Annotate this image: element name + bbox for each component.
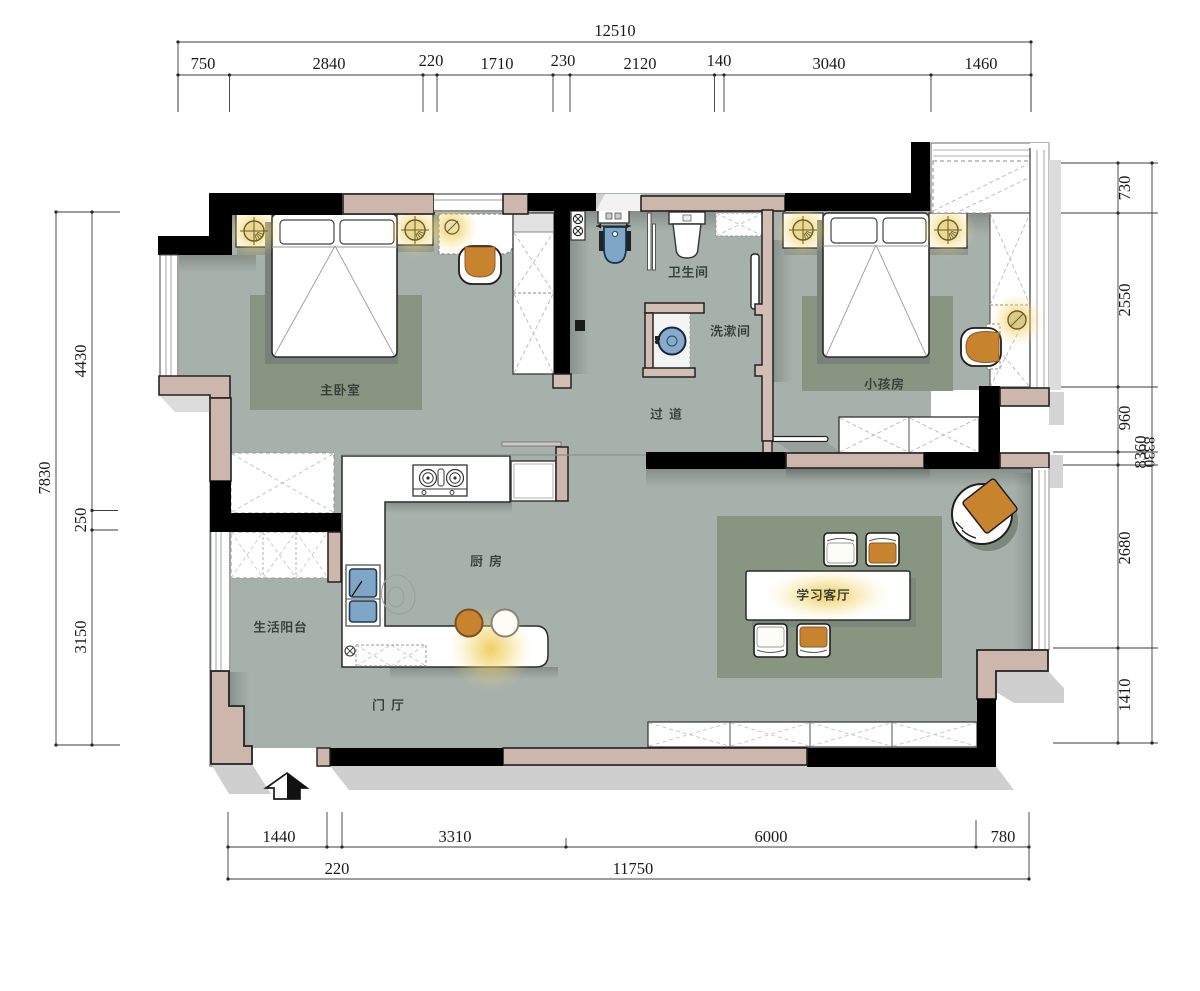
svg-text:750: 750 — [191, 54, 216, 73]
svg-text:960: 960 — [1115, 406, 1134, 431]
svg-text:2680: 2680 — [1115, 532, 1134, 565]
svg-text:250: 250 — [71, 508, 90, 533]
svg-text:2840: 2840 — [313, 54, 346, 73]
svg-text:4430: 4430 — [71, 345, 90, 378]
svg-text:7830: 7830 — [35, 462, 54, 495]
svg-text:220: 220 — [325, 859, 350, 878]
svg-text:730: 730 — [1115, 176, 1134, 201]
svg-text:12510: 12510 — [594, 21, 635, 40]
svg-text:2120: 2120 — [624, 54, 657, 73]
svg-text:1710: 1710 — [481, 54, 514, 73]
svg-text:3310: 3310 — [439, 827, 472, 846]
svg-text:1460: 1460 — [965, 54, 998, 73]
svg-text:3150: 3150 — [71, 621, 90, 654]
svg-text:1410: 1410 — [1115, 679, 1134, 712]
svg-text:1440: 1440 — [263, 827, 296, 846]
svg-text:11750: 11750 — [613, 859, 654, 878]
svg-text:220: 220 — [419, 51, 444, 70]
svg-text:140: 140 — [707, 51, 732, 70]
svg-text:6000: 6000 — [755, 827, 788, 846]
svg-text:230: 230 — [551, 51, 576, 70]
svg-text:8330: 8330 — [1140, 437, 1157, 468]
svg-text:3040: 3040 — [813, 54, 846, 73]
svg-text:2550: 2550 — [1115, 284, 1134, 317]
svg-text:780: 780 — [991, 827, 1016, 846]
